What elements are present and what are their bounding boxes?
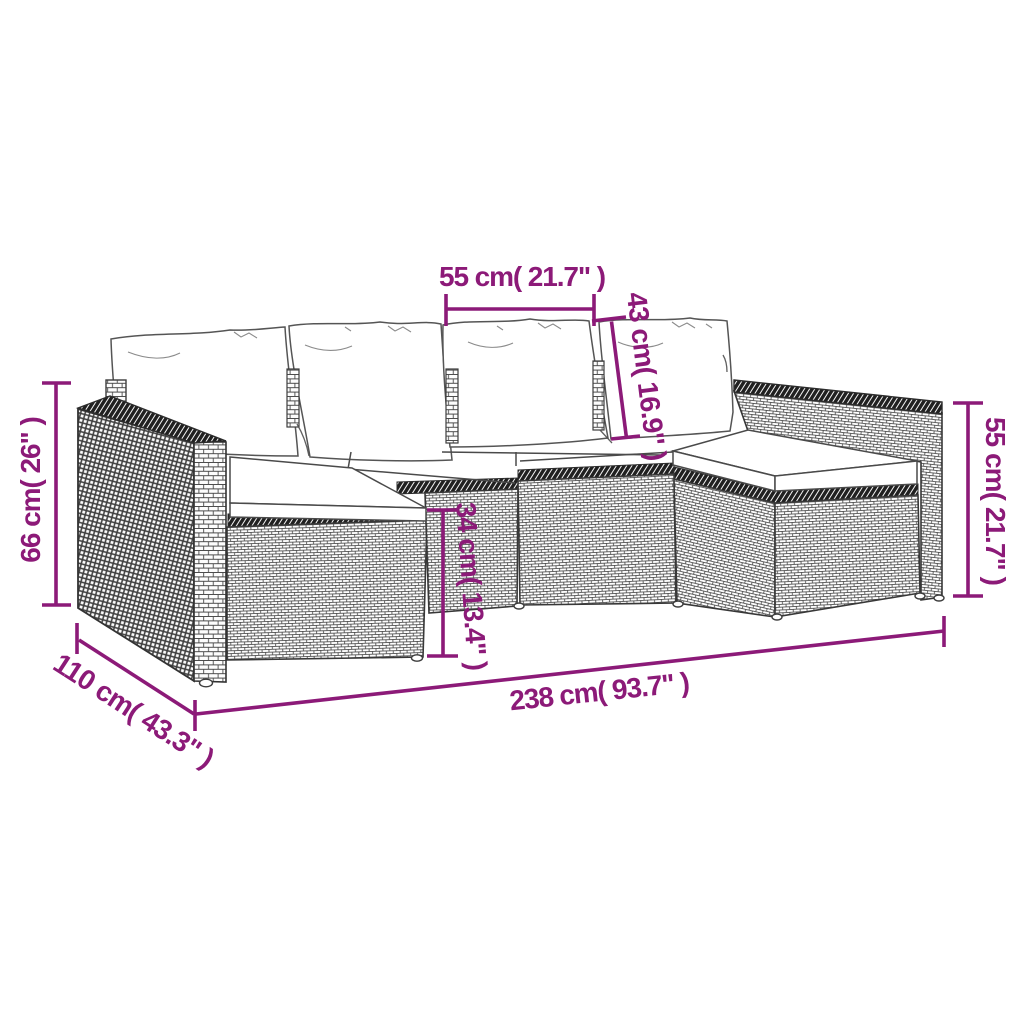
svg-text:55 cm( 21.7" ): 55 cm( 21.7" ) — [980, 417, 1011, 585]
svg-text:66 cm( 26" ): 66 cm( 26" ) — [15, 417, 46, 562]
svg-text:238 cm( 93.7" ): 238 cm( 93.7" ) — [508, 667, 690, 717]
svg-text:55 cm( 21.7" ): 55 cm( 21.7" ) — [439, 261, 605, 292]
